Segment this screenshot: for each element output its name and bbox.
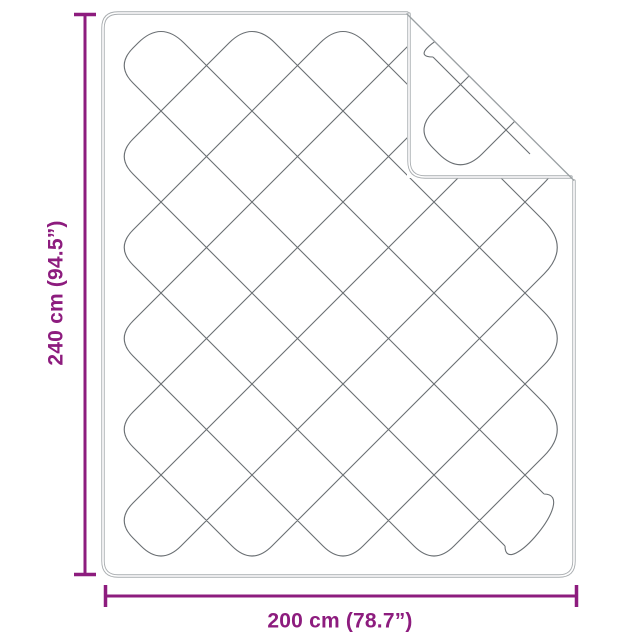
product-dimension-diagram: 240 cm (94.5”) 200 cm (78.7”) [0,0,640,640]
blanket-outline-core [103,13,574,576]
width-dimension-line [105,585,577,607]
quilt-pattern-main [124,32,557,557]
blanket-diagram-svg [0,0,640,640]
blanket-body-outline [103,13,574,576]
blanket-body-outline-core [103,13,574,576]
fold-crease [407,14,575,181]
width-dimension-label: 200 cm (78.7”) [267,611,412,632]
height-dimension-line [74,14,96,575]
height-dimension-label: 240 cm (94.5”) [46,220,67,365]
blanket-outline [103,13,574,576]
